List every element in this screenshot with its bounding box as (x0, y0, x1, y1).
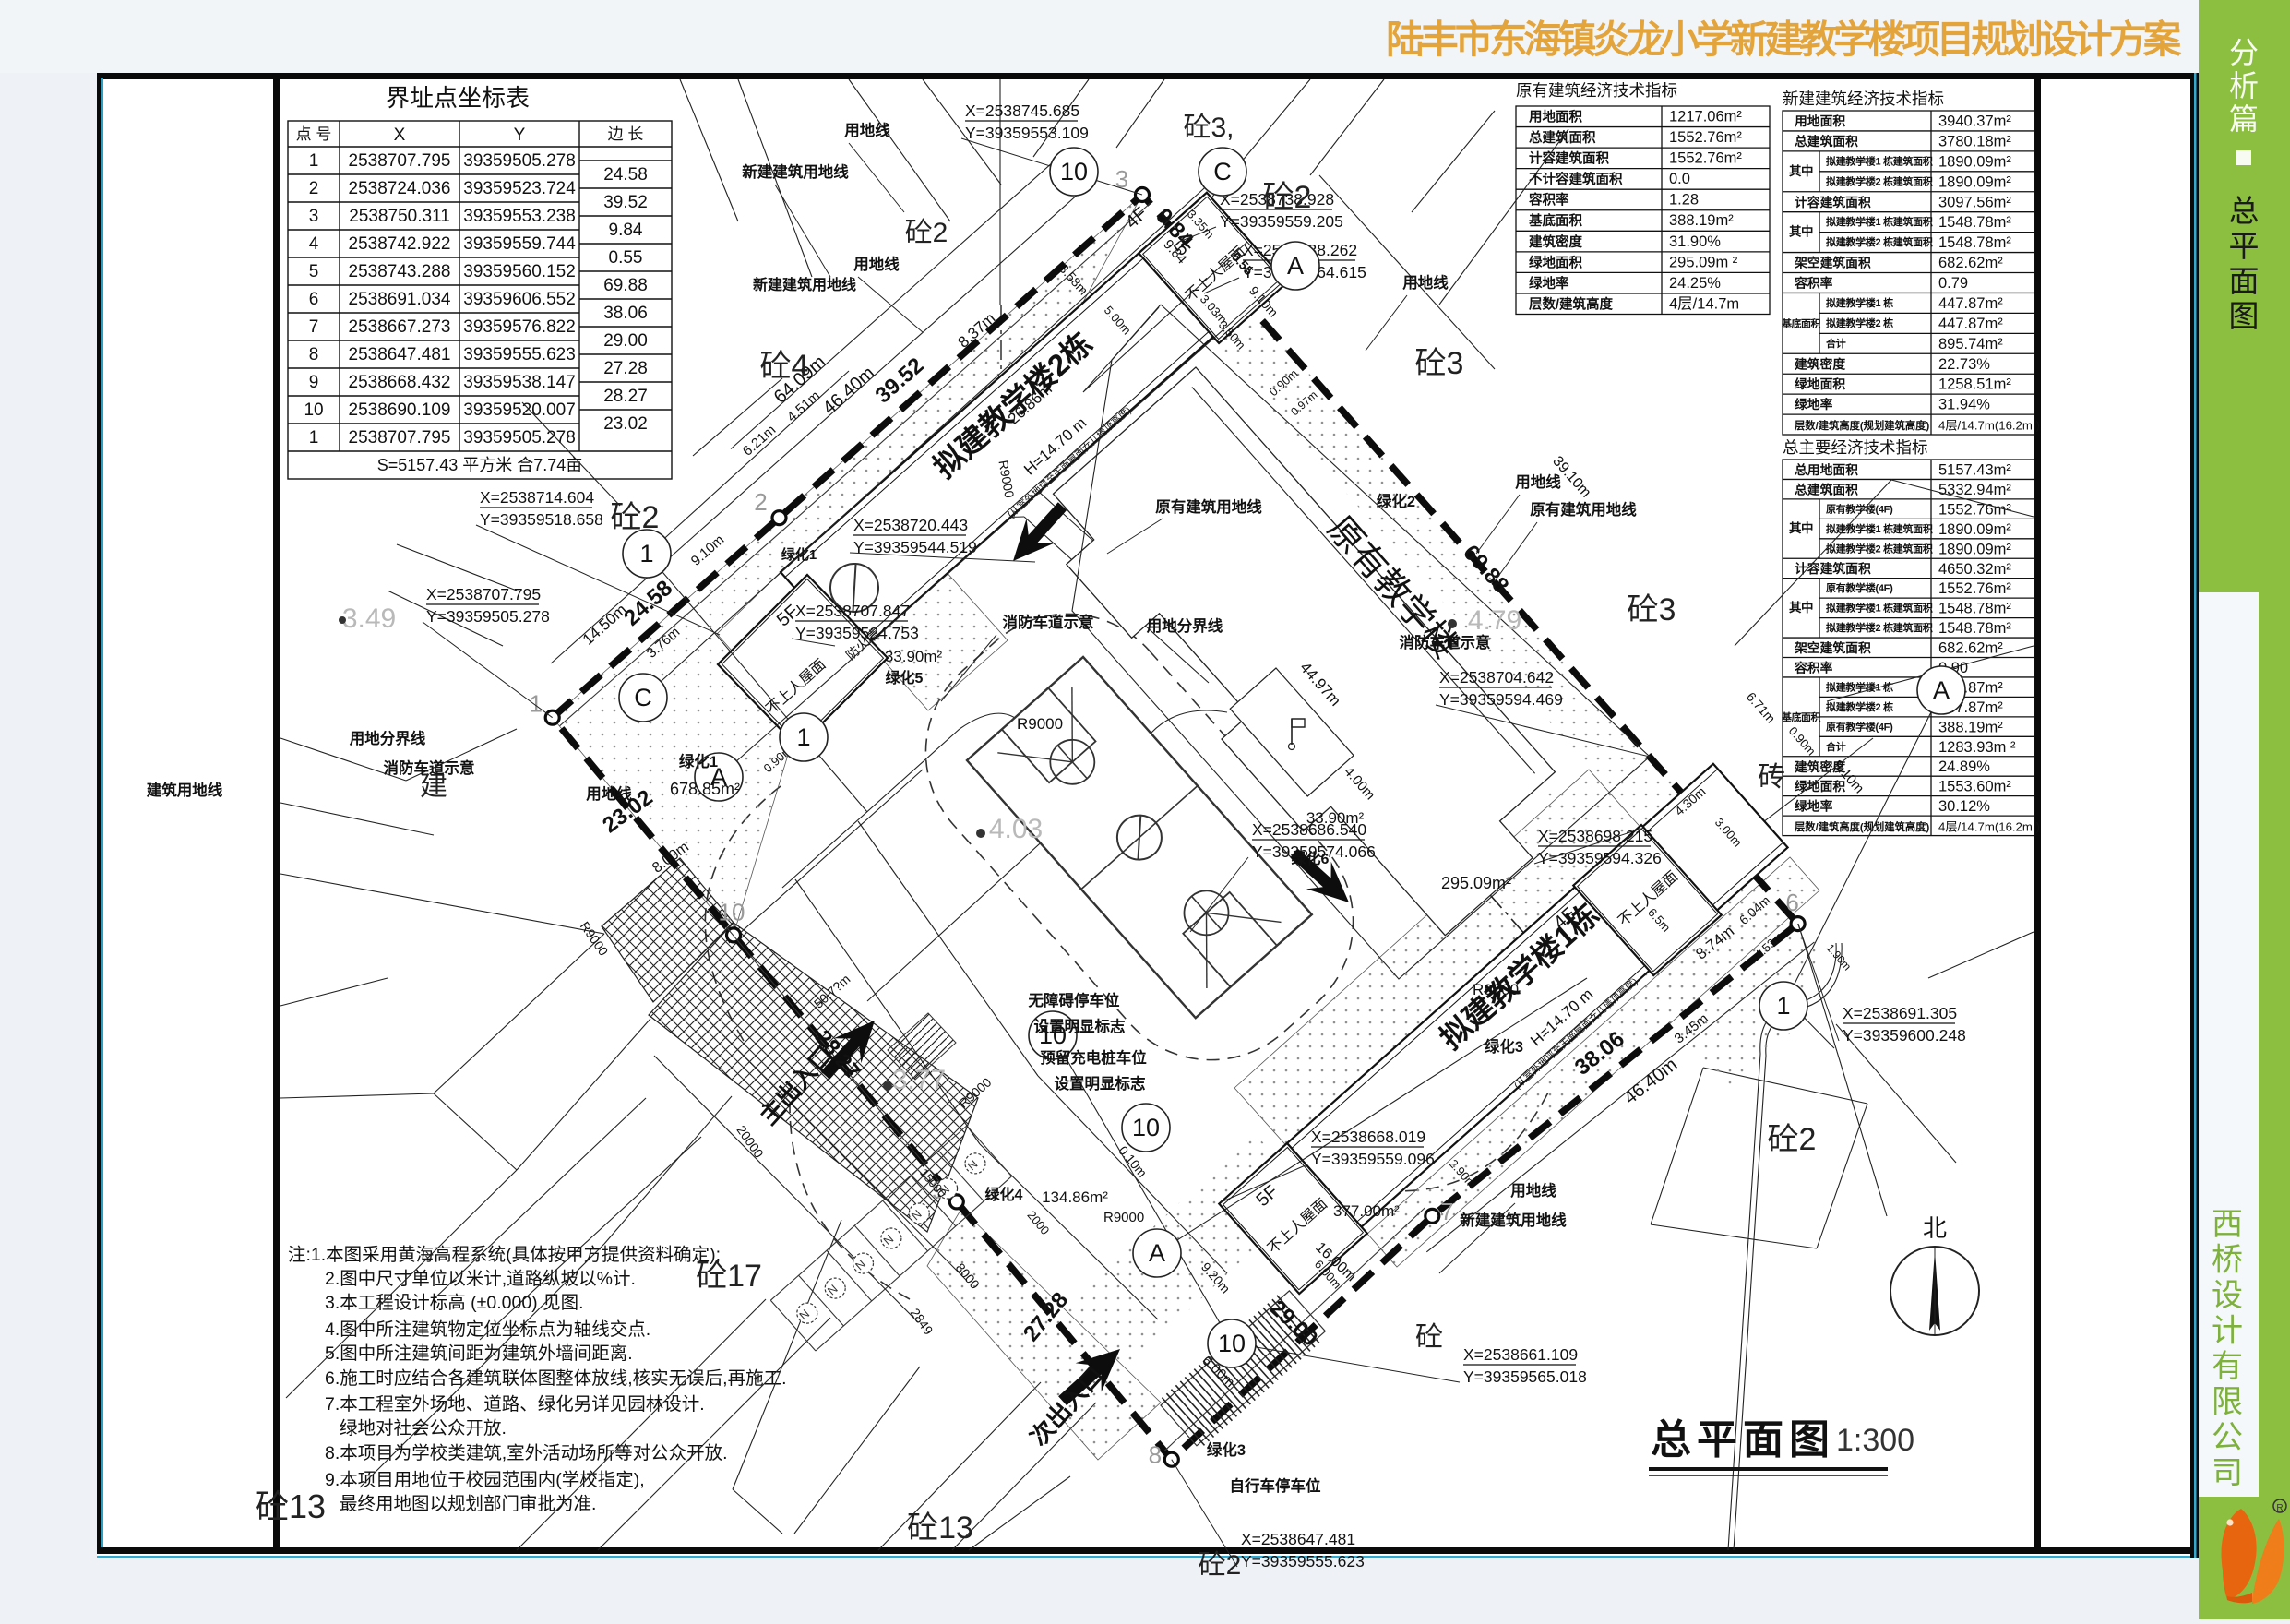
svg-text:建筑用地线: 建筑用地线 (147, 781, 223, 799)
svg-text:682.62m²: 682.62m² (1938, 255, 2003, 271)
svg-text:绿化6: 绿化6 (1292, 850, 1330, 867)
svg-text:总建筑面积: 总建筑面积 (1795, 483, 1858, 497)
svg-text:用地面积: 用地面积 (1795, 113, 1845, 128)
svg-text:X=2538707.795: X=2538707.795 (426, 585, 541, 603)
svg-text:23.02: 23.02 (603, 414, 648, 434)
svg-text:基底面积: 基底面积 (1781, 316, 1820, 329)
svg-text:平: 平 (2229, 229, 2260, 263)
svg-text:27.28: 27.28 (603, 359, 648, 378)
svg-text:容积率: 容积率 (1794, 661, 1833, 675)
svg-text:31.94%: 31.94% (1938, 397, 1990, 413)
svg-text:界址点坐标表: 界址点坐标表 (386, 84, 530, 112)
svg-text:24.89%: 24.89% (1938, 758, 1990, 775)
svg-text:不计容建筑面积: 不计容建筑面积 (1529, 171, 1623, 187)
svg-text:39359538.147: 39359538.147 (463, 373, 576, 392)
svg-text:5332.94m²: 5332.94m² (1938, 482, 2011, 498)
svg-text:2538690.109: 2538690.109 (349, 400, 451, 420)
svg-text:2538743.288: 2538743.288 (349, 262, 451, 281)
svg-text:架空建筑面积: 架空建筑面积 (1794, 256, 1871, 270)
svg-text:绿化5: 绿化5 (886, 669, 924, 687)
svg-text:1258.51m²: 1258.51m² (1938, 376, 2011, 393)
svg-text:原有建筑用地线: 原有建筑用地线 (1155, 497, 1262, 516)
svg-text:新建建筑用地线: 新建建筑用地线 (1460, 1211, 1567, 1229)
svg-text:绿化4: 绿化4 (985, 1186, 1023, 1203)
svg-text:砼2: 砼2 (905, 218, 948, 248)
svg-text:最终用地图以规划部门审批为准.: 最终用地图以规划部门审批为准. (340, 1494, 596, 1514)
svg-text:4层/14.7m(16.2m ): 4层/14.7m(16.2m ) (1938, 419, 2040, 433)
svg-text:计: 计 (2212, 1314, 2243, 1349)
svg-text:桥: 桥 (2212, 1243, 2243, 1278)
svg-text:用地分界线: 用地分界线 (1147, 616, 1223, 635)
svg-text:架空建筑面积: 架空建筑面积 (1794, 640, 1871, 655)
svg-text:1890.09m²: 1890.09m² (1938, 521, 2011, 538)
svg-text:容积率: 容积率 (1794, 276, 1833, 291)
svg-text:原有教学楼(4F): 原有教学楼(4F) (1826, 720, 1893, 733)
svg-text:1552.76m²: 1552.76m² (1669, 129, 1742, 146)
svg-text:S=5157.43 平方米 合7.74亩: S=5157.43 平方米 合7.74亩 (377, 456, 583, 474)
svg-text:原有建筑经济技术指标: 原有建筑经济技术指标 (1516, 81, 1677, 100)
svg-text:Y: Y (514, 125, 526, 145)
svg-text:其中: 其中 (1789, 600, 1813, 615)
svg-text:1552.76m²: 1552.76m² (1938, 501, 2011, 518)
svg-text:面: 面 (2229, 264, 2260, 298)
svg-text:用地线: 用地线 (1402, 273, 1449, 292)
svg-text:10: 10 (1132, 1114, 1160, 1141)
svg-text:绿化3: 绿化3 (1485, 1037, 1523, 1056)
svg-text:Y=39359553.109: Y=39359553.109 (965, 124, 1089, 142)
svg-text:2538691.034: 2538691.034 (349, 290, 451, 309)
svg-text:9: 9 (309, 373, 319, 392)
svg-text:R9000: R9000 (1473, 981, 1519, 998)
svg-text:4层/14.7m(16.2m ): 4层/14.7m(16.2m ) (1938, 820, 2040, 834)
svg-text:消防车道示意: 消防车道示意 (1400, 633, 1491, 651)
svg-text:边 长: 边 长 (608, 125, 644, 143)
svg-text:层数/建筑高度: 层数/建筑高度 (1529, 296, 1614, 313)
svg-text:1: 1 (639, 540, 653, 567)
svg-text:1: 1 (1776, 992, 1790, 1020)
svg-text:预留充电桩车位: 预留充电桩车位 (1040, 1048, 1147, 1067)
svg-text:39.52: 39.52 (603, 193, 648, 212)
svg-text:4.03: 4.03 (989, 814, 1043, 844)
svg-text:用地线: 用地线 (586, 784, 632, 803)
svg-text:22.73%: 22.73% (1938, 356, 1990, 373)
svg-text:4.79: 4.79 (1468, 605, 1521, 636)
svg-text:6: 6 (1785, 889, 1798, 916)
svg-text:2538647.481: 2538647.481 (349, 345, 451, 364)
svg-text:1: 1 (309, 428, 319, 448)
svg-text:1: 1 (796, 723, 810, 751)
svg-text:1552.76m²: 1552.76m² (1669, 150, 1742, 167)
svg-text:1548.78m²: 1548.78m² (1938, 234, 2011, 251)
svg-text:1: 1 (309, 151, 319, 171)
svg-text:X=2538661.109: X=2538661.109 (1463, 1345, 1578, 1364)
svg-text:分: 分 (2229, 36, 2259, 69)
svg-text:总平面图: 总平面图 (1651, 1417, 1835, 1463)
svg-text:3097.56m²: 3097.56m² (1938, 194, 2011, 210)
svg-text:X=2538704.642: X=2538704.642 (1439, 668, 1554, 687)
svg-text:Y=39359524.753: Y=39359524.753 (795, 624, 919, 642)
svg-text:9.本项目用地位于校园范围内(学校指定),: 9.本项目用地位于校园范围内(学校指定), (325, 1470, 645, 1490)
svg-text:8: 8 (309, 345, 319, 364)
svg-text:1: 1 (529, 690, 542, 718)
svg-text:拟建教学楼2 栋建筑面积: 拟建教学楼2 栋建筑面积 (1826, 542, 1933, 555)
svg-text:1.28: 1.28 (1669, 192, 1699, 209)
svg-text:用地线: 用地线 (844, 121, 890, 139)
svg-text:绿地面积: 绿地面积 (1795, 779, 1845, 794)
svg-text:24.25%: 24.25% (1669, 275, 1721, 292)
svg-text:拟建教学楼2 栋建筑面积: 拟建教学楼2 栋建筑面积 (1826, 621, 1933, 634)
svg-text:X=2538714.604: X=2538714.604 (480, 488, 594, 507)
svg-text:砼2: 砼2 (611, 500, 660, 535)
svg-text:1552.76m²: 1552.76m² (1938, 580, 2011, 597)
svg-text:砼13: 砼13 (256, 1487, 326, 1525)
svg-text:39359559.744: 39359559.744 (463, 234, 576, 254)
svg-text:拟建教学楼1 栋建筑面积: 拟建教学楼1 栋建筑面积 (1826, 602, 1933, 615)
svg-text:其中: 其中 (1789, 224, 1813, 239)
svg-text:3.77: 3.77 (892, 1065, 946, 1095)
svg-text:3780.18m²: 3780.18m² (1938, 133, 2011, 149)
svg-text:图: 图 (2229, 299, 2260, 333)
svg-text:A: A (1287, 252, 1304, 280)
svg-text:10: 10 (1060, 158, 1088, 185)
svg-text:绿化1: 绿化1 (679, 752, 718, 770)
svg-text:Y=39359559.096: Y=39359559.096 (1311, 1150, 1435, 1168)
svg-text:设置明显标志: 设置明显标志 (1055, 1074, 1146, 1093)
svg-text:Y=39359544.519: Y=39359544.519 (853, 538, 977, 556)
svg-text:基底面积: 基底面积 (1781, 710, 1820, 723)
svg-text:R9000: R9000 (1103, 1210, 1144, 1225)
svg-text:39359505.278: 39359505.278 (463, 428, 576, 448)
svg-text:2538668.432: 2538668.432 (349, 373, 451, 392)
svg-text:拟建教学楼1 栋建筑面积: 拟建教学楼1 栋建筑面积 (1826, 154, 1933, 167)
svg-text:西: 西 (2212, 1207, 2243, 1242)
svg-text:295.09m ²: 295.09m ² (1669, 254, 1738, 270)
svg-text:31.90%: 31.90% (1669, 233, 1721, 250)
svg-text:39359560.152: 39359560.152 (463, 262, 576, 281)
svg-text:点 号: 点 号 (296, 125, 332, 143)
svg-text:3940.37m²: 3940.37m² (1938, 113, 2011, 130)
svg-text:C: C (1213, 158, 1232, 185)
svg-text:4650.32m²: 4650.32m² (1938, 561, 2011, 578)
svg-text:用地面积: 用地面积 (1529, 109, 1582, 125)
svg-text:2.图中尺寸单位以米计,道路纵坡以%计.: 2.图中尺寸单位以米计,道路纵坡以%计. (325, 1269, 636, 1289)
svg-text:8.本项目为学校类建筑,室外活动场所等对公众开放.: 8.本项目为学校类建筑,室外活动场所等对公众开放. (325, 1443, 728, 1463)
svg-text:895.74m²: 895.74m² (1938, 336, 2003, 352)
svg-text:5: 5 (309, 262, 319, 281)
svg-text:砼2: 砼2 (1768, 1122, 1817, 1157)
svg-text:消防车道示意: 消防车道示意 (384, 758, 475, 777)
svg-text:39359555.623: 39359555.623 (463, 345, 576, 364)
svg-text:6.施工时应结合各建筑联体图整体放线,核实无误后,再施工.: 6.施工时应结合各建筑联体图整体放线,核实无误后,再施工. (325, 1368, 787, 1389)
svg-text:2538667.273: 2538667.273 (349, 317, 451, 337)
svg-text:用地线: 用地线 (1515, 472, 1561, 491)
svg-text:7: 7 (1440, 1198, 1453, 1225)
svg-text:原有教学楼(4F): 原有教学楼(4F) (1826, 581, 1893, 594)
svg-text:砼: 砼 (1415, 1322, 1443, 1353)
svg-text:2538750.311: 2538750.311 (349, 207, 450, 226)
svg-text:10: 10 (719, 898, 745, 925)
svg-text:1553.60m²: 1553.60m² (1938, 779, 2011, 795)
svg-text:其中: 其中 (1789, 163, 1813, 178)
svg-text:A: A (1149, 1239, 1165, 1267)
svg-text:Y=39359600.248: Y=39359600.248 (1843, 1026, 1966, 1045)
svg-text:447.87m²: 447.87m² (1938, 316, 2003, 332)
svg-text:7.本工程室外场地、道路、绿化另详见园林设计.: 7.本工程室外场地、道路、绿化另详见园林设计. (325, 1394, 705, 1415)
svg-text:678.85m²: 678.85m² (670, 780, 740, 798)
svg-text:原有建筑用地线: 原有建筑用地线 (1530, 500, 1637, 519)
svg-text:计容建筑面积: 计容建筑面积 (1529, 150, 1609, 167)
svg-text:用地分界线: 用地分界线 (350, 729, 426, 747)
svg-text:拟建教学楼1 栋: 拟建教学楼1 栋 (1826, 296, 1893, 309)
svg-text:2538742.922: 2538742.922 (349, 234, 451, 254)
svg-text:拟建教学楼2 栋: 拟建教学楼2 栋 (1826, 700, 1893, 713)
svg-text:1:300: 1:300 (1836, 1423, 1914, 1458)
svg-text:总主要经济技术指标: 总主要经济技术指标 (1783, 438, 1928, 457)
svg-text:砼3: 砼3 (1415, 346, 1464, 381)
svg-text:1548.78m²: 1548.78m² (1938, 620, 2011, 637)
svg-text:4层/14.7m: 4层/14.7m (1669, 296, 1739, 313)
svg-text:1217.06m²: 1217.06m² (1669, 109, 1742, 125)
svg-text:拟建教学楼2 栋建筑面积: 拟建教学楼2 栋建筑面积 (1826, 174, 1933, 187)
svg-text:3.49: 3.49 (342, 603, 396, 634)
svg-text:0.0: 0.0 (1669, 171, 1690, 187)
svg-text:绿地率: 绿地率 (1795, 397, 1833, 412)
svg-text:建筑密度: 建筑密度 (1529, 233, 1582, 250)
svg-text:X=2538691.305: X=2538691.305 (1843, 1004, 1957, 1022)
svg-text:5.图中所注建筑间距为建筑外墙间距离.: 5.图中所注建筑间距为建筑外墙间距离. (325, 1343, 633, 1364)
svg-text:9.84: 9.84 (609, 221, 643, 240)
svg-text:X=2538647.481: X=2538647.481 (1241, 1530, 1355, 1548)
svg-text:1548.78m²: 1548.78m² (1938, 214, 2011, 231)
svg-text:其中: 其中 (1789, 520, 1813, 535)
svg-text:陆丰市东海镇炎龙小学新建教学楼项目规划设计方案: 陆丰市东海镇炎龙小学新建教学楼项目规划设计方案 (1386, 18, 2182, 61)
svg-text:39359520.007: 39359520.007 (463, 400, 576, 420)
svg-text:绿地面积: 绿地面积 (1795, 376, 1845, 391)
svg-text:X=2538698.215: X=2538698.215 (1538, 827, 1652, 845)
svg-text:合计: 合计 (1826, 740, 1846, 753)
svg-text:砖: 砖 (1758, 762, 1785, 793)
svg-text:自行车停车位: 自行车停车位 (1230, 1476, 1322, 1495)
svg-text:39359606.552: 39359606.552 (463, 290, 576, 309)
svg-text:建筑密度: 建筑密度 (1795, 356, 1845, 371)
svg-text:绿化1: 绿化1 (781, 546, 817, 563)
svg-text:682.62m²: 682.62m² (1938, 640, 2003, 657)
svg-text:447.87m²: 447.87m² (1938, 295, 2003, 312)
svg-text:绿化2: 绿化2 (1377, 492, 1415, 510)
svg-text:39359505.278: 39359505.278 (463, 151, 576, 171)
svg-text:1548.78m²: 1548.78m² (1938, 601, 2011, 617)
svg-text:29.00: 29.00 (603, 331, 648, 351)
svg-text:拟建教学楼1 栋建筑面积: 拟建教学楼1 栋建筑面积 (1826, 522, 1933, 535)
svg-text:X=2538707.847: X=2538707.847 (795, 602, 910, 620)
svg-text:377.00m²: 377.00m² (1333, 1202, 1400, 1220)
svg-text:X=2538745.685: X=2538745.685 (965, 101, 1079, 120)
svg-text:容积率: 容积率 (1528, 192, 1569, 209)
svg-text:38.06: 38.06 (603, 304, 648, 323)
svg-text:设: 设 (2212, 1278, 2243, 1313)
svg-text:1890.09m²: 1890.09m² (1938, 153, 2011, 170)
svg-text:1890.09m²: 1890.09m² (1938, 541, 2011, 557)
svg-text:无障碍停车位: 无障碍停车位 (1028, 991, 1121, 1009)
svg-text:X: X (394, 125, 406, 145)
svg-text:绿地率: 绿地率 (1529, 275, 1569, 292)
svg-text:2538707.795: 2538707.795 (349, 428, 451, 448)
svg-text:绿地对社会公众开放.: 绿地对社会公众开放. (340, 1418, 507, 1439)
svg-text:2538724.036: 2538724.036 (349, 179, 451, 198)
svg-text:绿地面积: 绿地面积 (1529, 254, 1582, 270)
svg-text:Y=39359594.469: Y=39359594.469 (1439, 690, 1563, 709)
svg-text:设置明显标志: 设置明显标志 (1034, 1017, 1126, 1035)
svg-text:Y=39359518.658: Y=39359518.658 (480, 510, 603, 529)
svg-text:39359576.822: 39359576.822 (463, 317, 576, 337)
svg-text:Y=39359555.623: Y=39359555.623 (1241, 1552, 1365, 1570)
svg-text:层数/建筑高度(规划建筑高度): 层数/建筑高度(规划建筑高度) (1795, 419, 1929, 432)
svg-text:砼3,: 砼3, (1183, 113, 1234, 143)
svg-text:28.27: 28.27 (603, 387, 648, 406)
svg-text:0.55: 0.55 (609, 248, 643, 268)
svg-text:总: 总 (2229, 194, 2260, 228)
svg-text:砼4: 砼4 (760, 349, 809, 384)
svg-text:33.90m²: 33.90m² (885, 648, 943, 665)
svg-text:新建建筑用地线: 新建建筑用地线 (753, 276, 856, 293)
svg-text:用地线: 用地线 (1510, 1181, 1556, 1200)
svg-text:新建建筑用地线: 新建建筑用地线 (742, 162, 849, 181)
svg-text:R: R (2276, 1503, 2283, 1513)
svg-text:绿化3: 绿化3 (1207, 1440, 1246, 1459)
svg-text:砼3: 砼3 (1628, 592, 1676, 627)
svg-text:4: 4 (309, 234, 319, 254)
svg-text:2538707.795: 2538707.795 (349, 151, 451, 171)
svg-text:A: A (1933, 676, 1950, 704)
svg-text:拟建教学楼1 栋: 拟建教学楼1 栋 (1826, 681, 1893, 694)
svg-text:7: 7 (309, 317, 319, 337)
svg-text:拟建教学楼1 栋建筑面积: 拟建教学楼1 栋建筑面积 (1826, 215, 1933, 228)
svg-text:有: 有 (2212, 1349, 2243, 1384)
svg-text:析: 析 (2229, 69, 2259, 102)
svg-text:6: 6 (309, 290, 319, 309)
svg-text:4.图中所注建筑物定位坐标点为轴线交点.: 4.图中所注建筑物定位坐标点为轴线交点. (325, 1319, 650, 1340)
svg-text:司: 司 (2212, 1456, 2243, 1491)
svg-text:层数/建筑高度(规划建筑高度): 层数/建筑高度(规划建筑高度) (1795, 820, 1929, 833)
svg-text:拟建教学楼2 栋建筑面积: 拟建教学楼2 栋建筑面积 (1826, 235, 1933, 248)
svg-text:39359523.724: 39359523.724 (463, 179, 576, 198)
svg-text:295.09m²: 295.09m² (1441, 874, 1511, 892)
svg-text:基底面积: 基底面积 (1528, 212, 1582, 229)
svg-text:注:1.本图采用黄海高程系统(具体按甲方提供资料确定);: 注:1.本图采用黄海高程系统(具体按甲方提供资料确定); (288, 1245, 721, 1265)
svg-text:33.90m²: 33.90m² (1306, 809, 1365, 827)
svg-text:Y=39359565.018: Y=39359565.018 (1463, 1367, 1587, 1386)
svg-text:30.12%: 30.12% (1938, 798, 1990, 815)
svg-text:用地线: 用地线 (853, 255, 900, 273)
svg-text:计容建筑面积: 计容建筑面积 (1795, 561, 1871, 576)
svg-text:R9000: R9000 (1017, 715, 1063, 733)
svg-text:24.58: 24.58 (603, 165, 648, 185)
svg-text:Y=39359559.205: Y=39359559.205 (1220, 212, 1343, 231)
svg-text:公: 公 (2212, 1420, 2243, 1455)
svg-text:388.19m²: 388.19m² (1669, 212, 1734, 229)
svg-text:5157.43m²: 5157.43m² (1938, 462, 2011, 479)
svg-text:北: 北 (1923, 1214, 1947, 1242)
svg-text:新建建筑经济技术指标: 新建建筑经济技术指标 (1783, 90, 1944, 108)
svg-text:X=2538720.443: X=2538720.443 (853, 516, 968, 534)
svg-text:Y=39359594.326: Y=39359594.326 (1538, 849, 1662, 867)
svg-text:3: 3 (309, 207, 319, 226)
svg-text:0.79: 0.79 (1938, 275, 1968, 292)
svg-text:2: 2 (309, 179, 319, 198)
svg-text:篇: 篇 (2229, 102, 2259, 136)
svg-text:8: 8 (1149, 1441, 1162, 1469)
svg-text:消防车道示意: 消防车道示意 (1003, 613, 1094, 631)
svg-text:10: 10 (1218, 1330, 1246, 1357)
svg-text:计容建筑面积: 计容建筑面积 (1795, 195, 1871, 209)
svg-text:134.86m²: 134.86m² (1042, 1188, 1108, 1206)
svg-text:总建筑面积: 总建筑面积 (1795, 134, 1858, 149)
svg-text:10: 10 (304, 400, 323, 420)
svg-text:1283.93m ²: 1283.93m ² (1938, 739, 2016, 756)
svg-text:39359553.238: 39359553.238 (463, 207, 576, 226)
svg-text:Y=39359505.278: Y=39359505.278 (426, 607, 550, 626)
svg-text:1890.09m²: 1890.09m² (1938, 173, 2011, 190)
svg-text:总用地面积: 总用地面积 (1795, 462, 1858, 477)
svg-text:砼13: 砼13 (907, 1511, 973, 1546)
svg-text:2: 2 (754, 488, 767, 516)
svg-text:限: 限 (2212, 1385, 2243, 1420)
svg-text:拟建教学楼2 栋: 拟建教学楼2 栋 (1826, 316, 1893, 329)
svg-text:砼2: 砼2 (1263, 180, 1312, 215)
svg-text:砼2: 砼2 (1199, 1550, 1242, 1581)
svg-text:绿地率: 绿地率 (1795, 799, 1833, 814)
svg-text:C: C (634, 684, 652, 711)
svg-text:388.19m²: 388.19m² (1938, 719, 2003, 735)
svg-text:合计: 合计 (1826, 337, 1846, 350)
svg-text:砼17: 砼17 (696, 1259, 762, 1294)
svg-text:69.88: 69.88 (603, 276, 648, 295)
